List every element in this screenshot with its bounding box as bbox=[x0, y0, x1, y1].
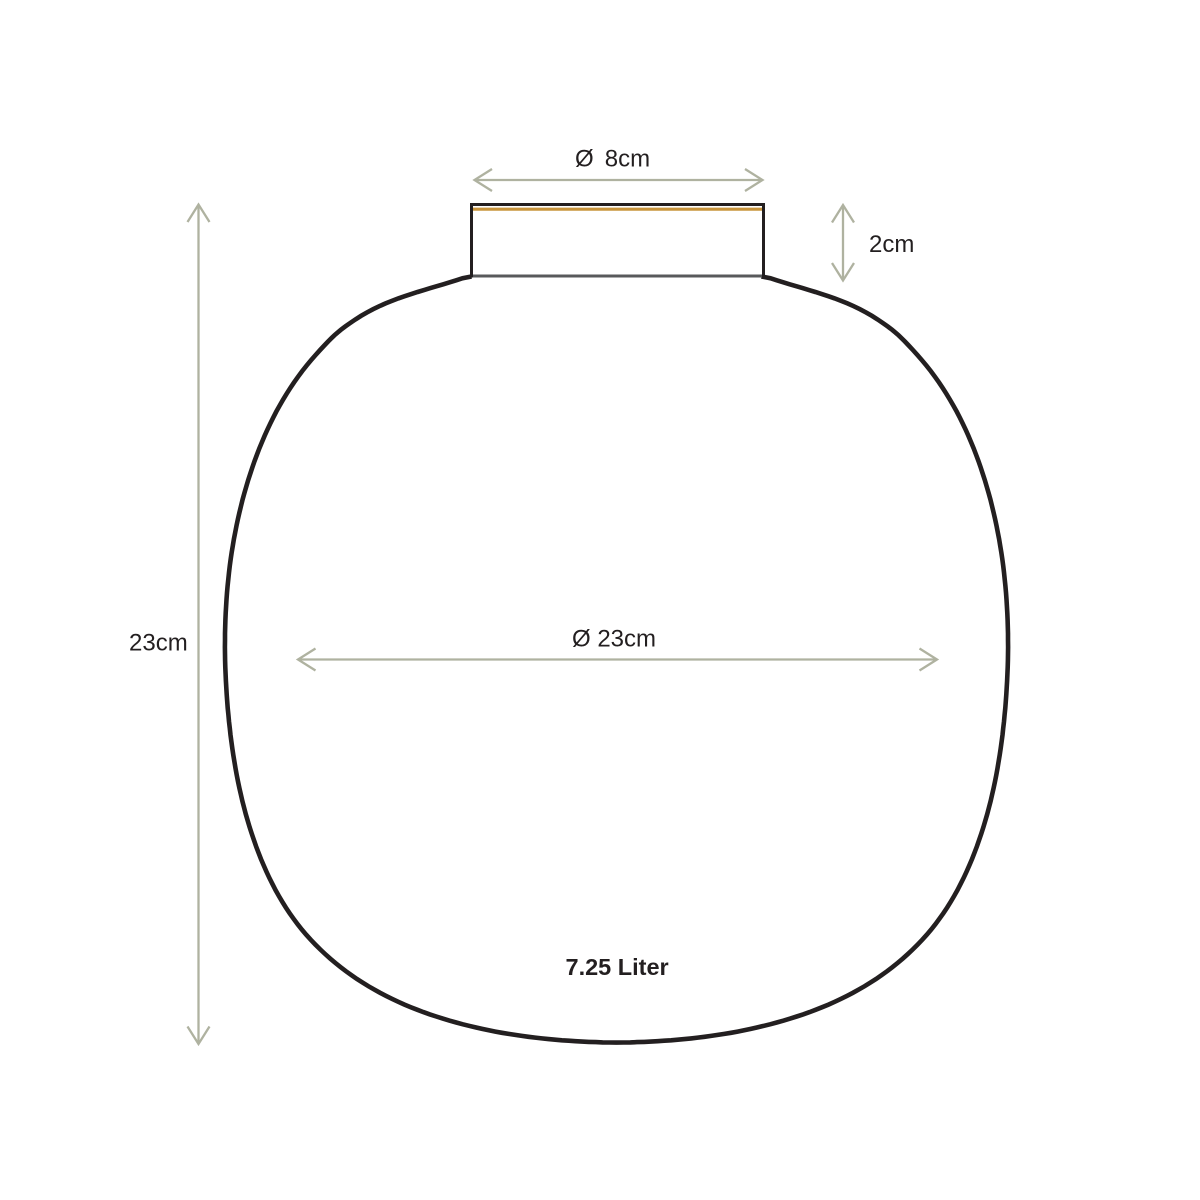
svg-text:Ø 23cm: Ø 23cm bbox=[572, 626, 656, 653]
svg-text:2cm: 2cm bbox=[869, 231, 914, 258]
svg-text:Ø 8cm: Ø 8cm bbox=[575, 146, 650, 173]
svg-text:23cm: 23cm bbox=[129, 630, 188, 657]
svg-text:7.25 Liter: 7.25 Liter bbox=[566, 954, 669, 980]
